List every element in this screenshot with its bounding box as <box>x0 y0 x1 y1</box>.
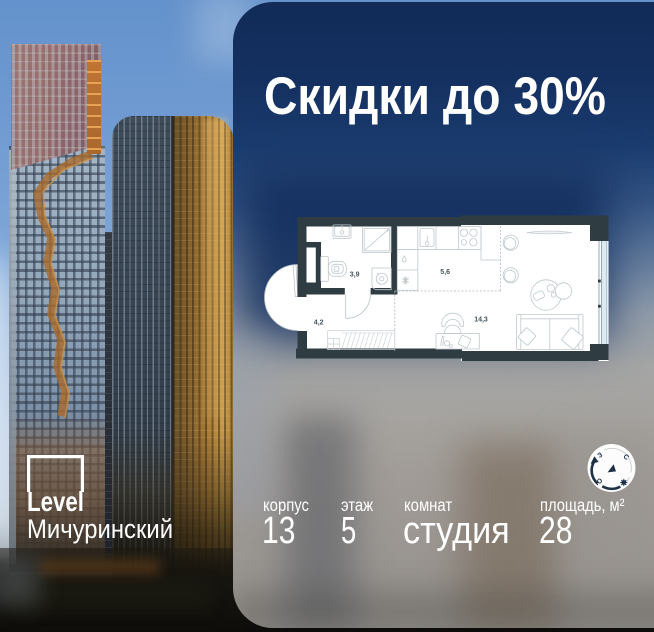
svg-text:3,9: 3,9 <box>350 271 360 278</box>
svg-text:4,2: 4,2 <box>314 320 324 327</box>
svg-text:14,3: 14,3 <box>474 317 488 324</box>
svg-text:5,6: 5,6 <box>440 269 450 276</box>
